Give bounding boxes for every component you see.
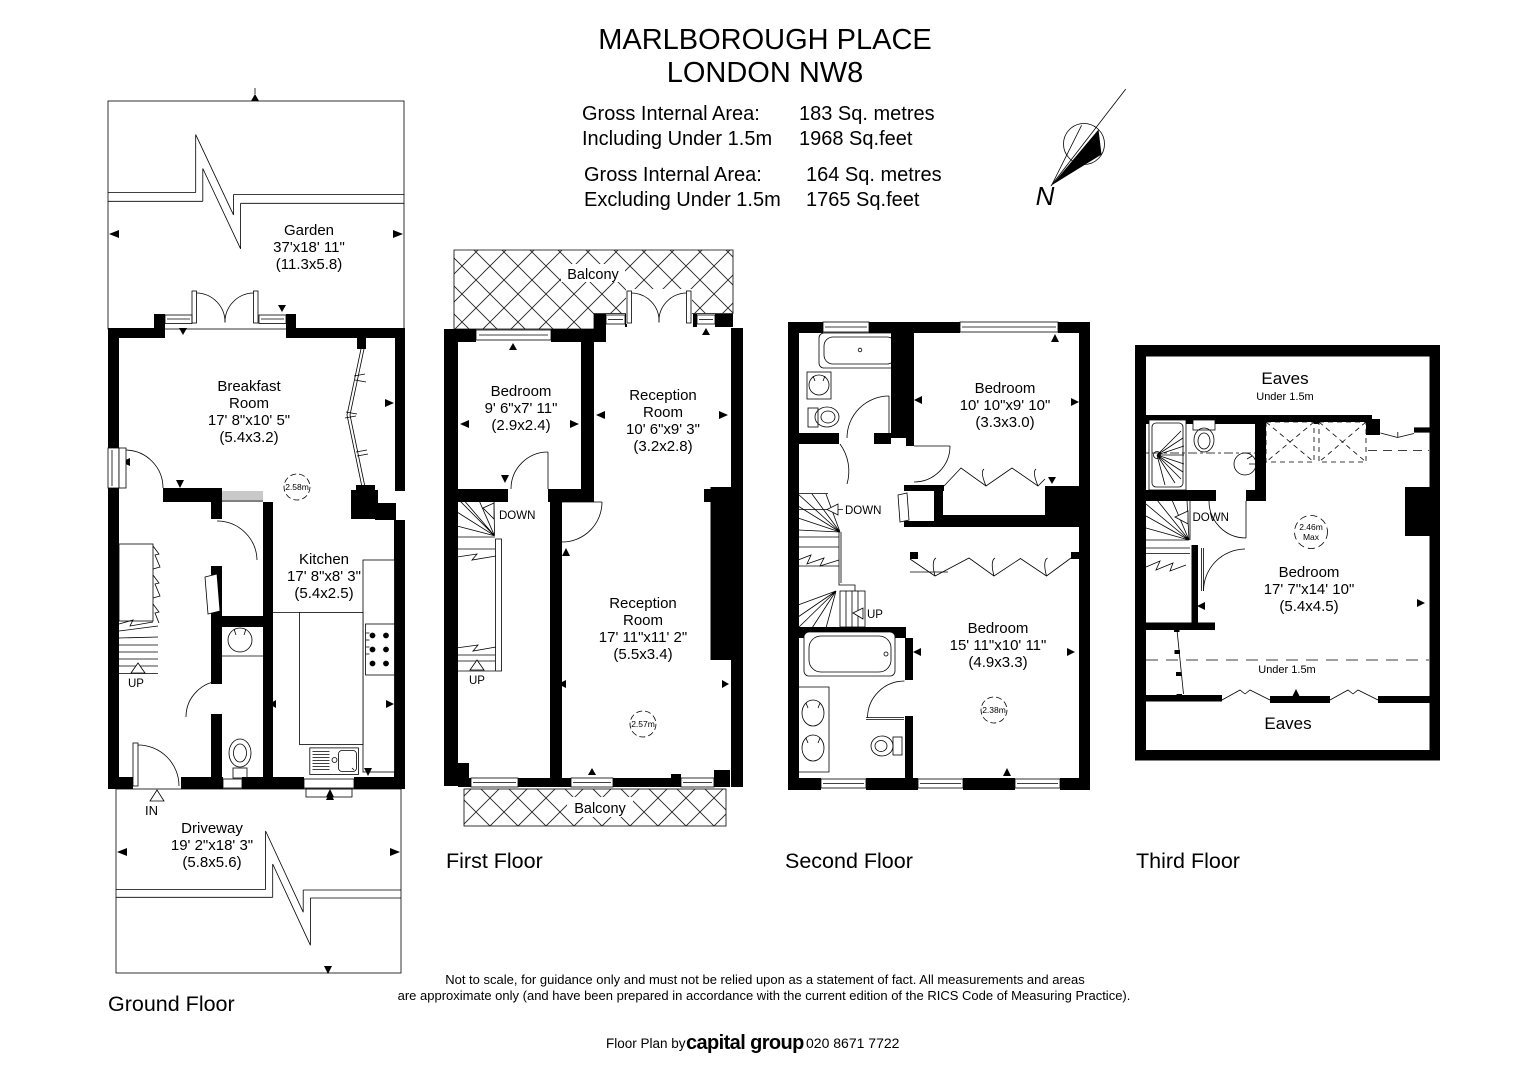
svg-text:Under 1.5m: Under 1.5m <box>1256 391 1313 403</box>
svg-text:(5.5x3.4): (5.5x3.4) <box>613 646 672 663</box>
svg-text:Kitchen: Kitchen <box>299 551 349 568</box>
svg-text:IN: IN <box>145 803 158 818</box>
svg-text:17' 8"x8' 3": 17' 8"x8' 3" <box>287 568 361 585</box>
svg-text:Gross Internal Area:: Gross Internal Area: <box>582 103 760 125</box>
svg-text:Room: Room <box>229 395 269 412</box>
svg-text:Room: Room <box>643 404 683 421</box>
svg-text:Max: Max <box>1303 532 1320 542</box>
svg-text:Reception: Reception <box>629 387 697 404</box>
svg-text:Driveway: Driveway <box>181 820 243 837</box>
svg-text:DOWN: DOWN <box>845 505 881 517</box>
svg-text:37'x18' 11": 37'x18' 11" <box>273 239 345 256</box>
svg-text:Floor Plan by: Floor Plan by <box>606 1036 686 1051</box>
svg-text:17' 8"x10' 5": 17' 8"x10' 5" <box>208 412 290 429</box>
svg-text:LONDON NW8: LONDON NW8 <box>667 57 864 89</box>
svg-text:UP: UP <box>128 678 144 690</box>
svg-text:(4.9x3.3): (4.9x3.3) <box>968 654 1027 671</box>
svg-text:1968 Sq.feet: 1968 Sq.feet <box>799 128 913 150</box>
svg-text:Bedroom: Bedroom <box>1279 564 1340 581</box>
svg-text:2.38m: 2.38m <box>982 705 1006 715</box>
svg-text:Second Floor: Second Floor <box>785 849 913 873</box>
svg-text:N: N <box>1036 181 1055 211</box>
svg-text:183 Sq. metres: 183 Sq. metres <box>799 103 935 125</box>
svg-text:First Floor: First Floor <box>446 849 543 873</box>
svg-text:MARLBOROUGH PLACE: MARLBOROUGH PLACE <box>598 24 932 56</box>
svg-text:Bedroom: Bedroom <box>975 380 1036 397</box>
svg-text:Ground Floor: Ground Floor <box>108 992 235 1016</box>
svg-text:(5.4x3.2): (5.4x3.2) <box>219 429 278 446</box>
svg-text:Garden: Garden <box>284 222 334 239</box>
svg-text:Room: Room <box>623 612 663 629</box>
svg-text:9' 6"x7' 11": 9' 6"x7' 11" <box>485 400 558 417</box>
svg-text:(3.3x3.0): (3.3x3.0) <box>975 414 1034 431</box>
svg-text:(5.4x4.5): (5.4x4.5) <box>1279 598 1338 615</box>
svg-text:15' 11"x10' 11": 15' 11"x10' 11" <box>950 637 1047 654</box>
svg-text:10' 6"x9' 3": 10' 6"x9' 3" <box>626 421 700 438</box>
svg-text:Third Floor: Third Floor <box>1136 849 1240 873</box>
svg-text:Gross Internal Area:: Gross Internal Area: <box>584 164 762 186</box>
svg-text:(11.3x5.8): (11.3x5.8) <box>276 256 342 273</box>
svg-text:020 8671 7722: 020 8671 7722 <box>806 1035 900 1051</box>
svg-text:1765 Sq.feet: 1765 Sq.feet <box>806 189 920 211</box>
svg-text:Eaves: Eaves <box>1264 714 1311 733</box>
svg-text:Bedroom: Bedroom <box>968 620 1029 637</box>
svg-text:UP: UP <box>867 609 883 621</box>
svg-text:2.46m: 2.46m <box>1299 522 1323 532</box>
svg-text:17' 7"x14' 10": 17' 7"x14' 10" <box>1264 581 1355 598</box>
svg-text:Balcony: Balcony <box>567 267 619 283</box>
svg-text:DOWN: DOWN <box>1193 512 1229 524</box>
svg-text:capital group: capital group <box>686 1032 804 1054</box>
svg-text:Reception: Reception <box>609 595 677 612</box>
svg-text:Including Under 1.5m: Including Under 1.5m <box>582 128 772 150</box>
svg-text:Breakfast: Breakfast <box>217 378 281 395</box>
svg-text:(5.4x2.5): (5.4x2.5) <box>294 585 353 602</box>
svg-text:Balcony: Balcony <box>574 801 626 817</box>
svg-text:Not to scale, for guidance onl: Not to scale, for guidance only and must… <box>445 972 1085 987</box>
svg-text:Under 1.5m: Under 1.5m <box>1258 664 1315 676</box>
svg-text:Excluding Under 1.5m: Excluding Under 1.5m <box>584 189 781 211</box>
svg-text:Bedroom: Bedroom <box>491 383 552 400</box>
svg-text:10' 10"x9' 10": 10' 10"x9' 10" <box>960 397 1051 414</box>
svg-text:UP: UP <box>469 675 485 687</box>
svg-text:are approximate only (and have: are approximate only (and have been prep… <box>398 988 1131 1003</box>
svg-text:(2.9x2.4): (2.9x2.4) <box>491 417 550 434</box>
svg-text:(3.2x2.8): (3.2x2.8) <box>633 438 692 455</box>
svg-text:2.58m: 2.58m <box>285 482 309 492</box>
svg-text:Eaves: Eaves <box>1261 369 1308 388</box>
svg-text:2.57m: 2.57m <box>631 719 655 729</box>
svg-text:(5.8x5.6): (5.8x5.6) <box>182 854 241 871</box>
svg-text:19' 2"x18' 3": 19' 2"x18' 3" <box>171 837 253 854</box>
svg-text:164 Sq. metres: 164 Sq. metres <box>806 164 942 186</box>
svg-text:DOWN: DOWN <box>499 510 535 522</box>
svg-text:17' 11"x11' 2": 17' 11"x11' 2" <box>599 629 687 646</box>
